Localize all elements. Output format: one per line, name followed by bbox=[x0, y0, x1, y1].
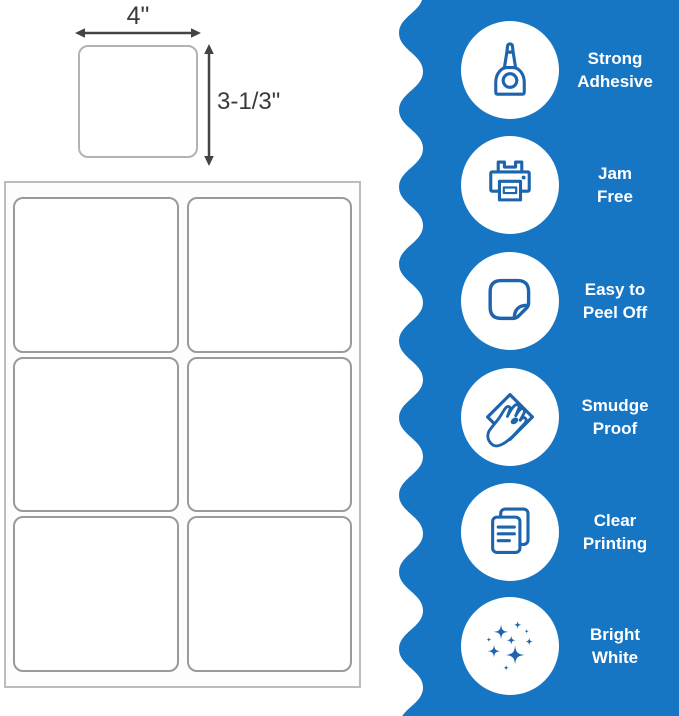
feature-badge-bright-white bbox=[461, 597, 559, 695]
feature-label-bright-white: Bright White bbox=[554, 620, 676, 672]
feature-label-smudge-proof: Smudge Proof bbox=[554, 391, 676, 443]
feature-text-line: Easy to bbox=[585, 278, 645, 301]
sparkles-icon bbox=[478, 614, 542, 678]
feature-text-line: Strong bbox=[588, 47, 643, 70]
printed-pages-icon bbox=[479, 501, 541, 563]
wave-banner bbox=[0, 0, 679, 716]
feature-label-strong-adhesive: Strong Adhesive bbox=[554, 44, 676, 96]
feature-text-line: Proof bbox=[593, 417, 637, 440]
feature-text-line: Free bbox=[597, 185, 633, 208]
feature-badge-easy-peel bbox=[461, 252, 559, 350]
feature-badge-jam-free bbox=[461, 136, 559, 234]
feature-label-clear-printing: Clear Printing bbox=[554, 506, 676, 558]
feature-badge-strong-adhesive bbox=[461, 21, 559, 119]
feature-badge-smudge-proof bbox=[461, 368, 559, 466]
feature-label-easy-peel: Easy to Peel Off bbox=[554, 275, 676, 327]
feature-text-line: Bright bbox=[590, 623, 640, 646]
feature-text-line: Adhesive bbox=[577, 70, 653, 93]
peeling-sticker-icon bbox=[479, 270, 541, 332]
printer-icon bbox=[479, 154, 541, 216]
feature-text-line: White bbox=[592, 646, 638, 669]
feature-label-jam-free: Jam Free bbox=[554, 159, 676, 211]
product-image: 4" 3-1/3" Strong Adhesive bbox=[0, 0, 679, 716]
feature-text-line: Smudge bbox=[581, 394, 648, 417]
feature-text-line: Jam bbox=[598, 162, 632, 185]
glue-bottle-icon bbox=[479, 39, 541, 101]
feature-text-line: Printing bbox=[583, 532, 647, 555]
feature-badge-clear-printing bbox=[461, 483, 559, 581]
feature-text-line: Peel Off bbox=[583, 301, 647, 324]
feature-text-line: Clear bbox=[594, 509, 637, 532]
hand-wipe-icon bbox=[478, 385, 542, 449]
